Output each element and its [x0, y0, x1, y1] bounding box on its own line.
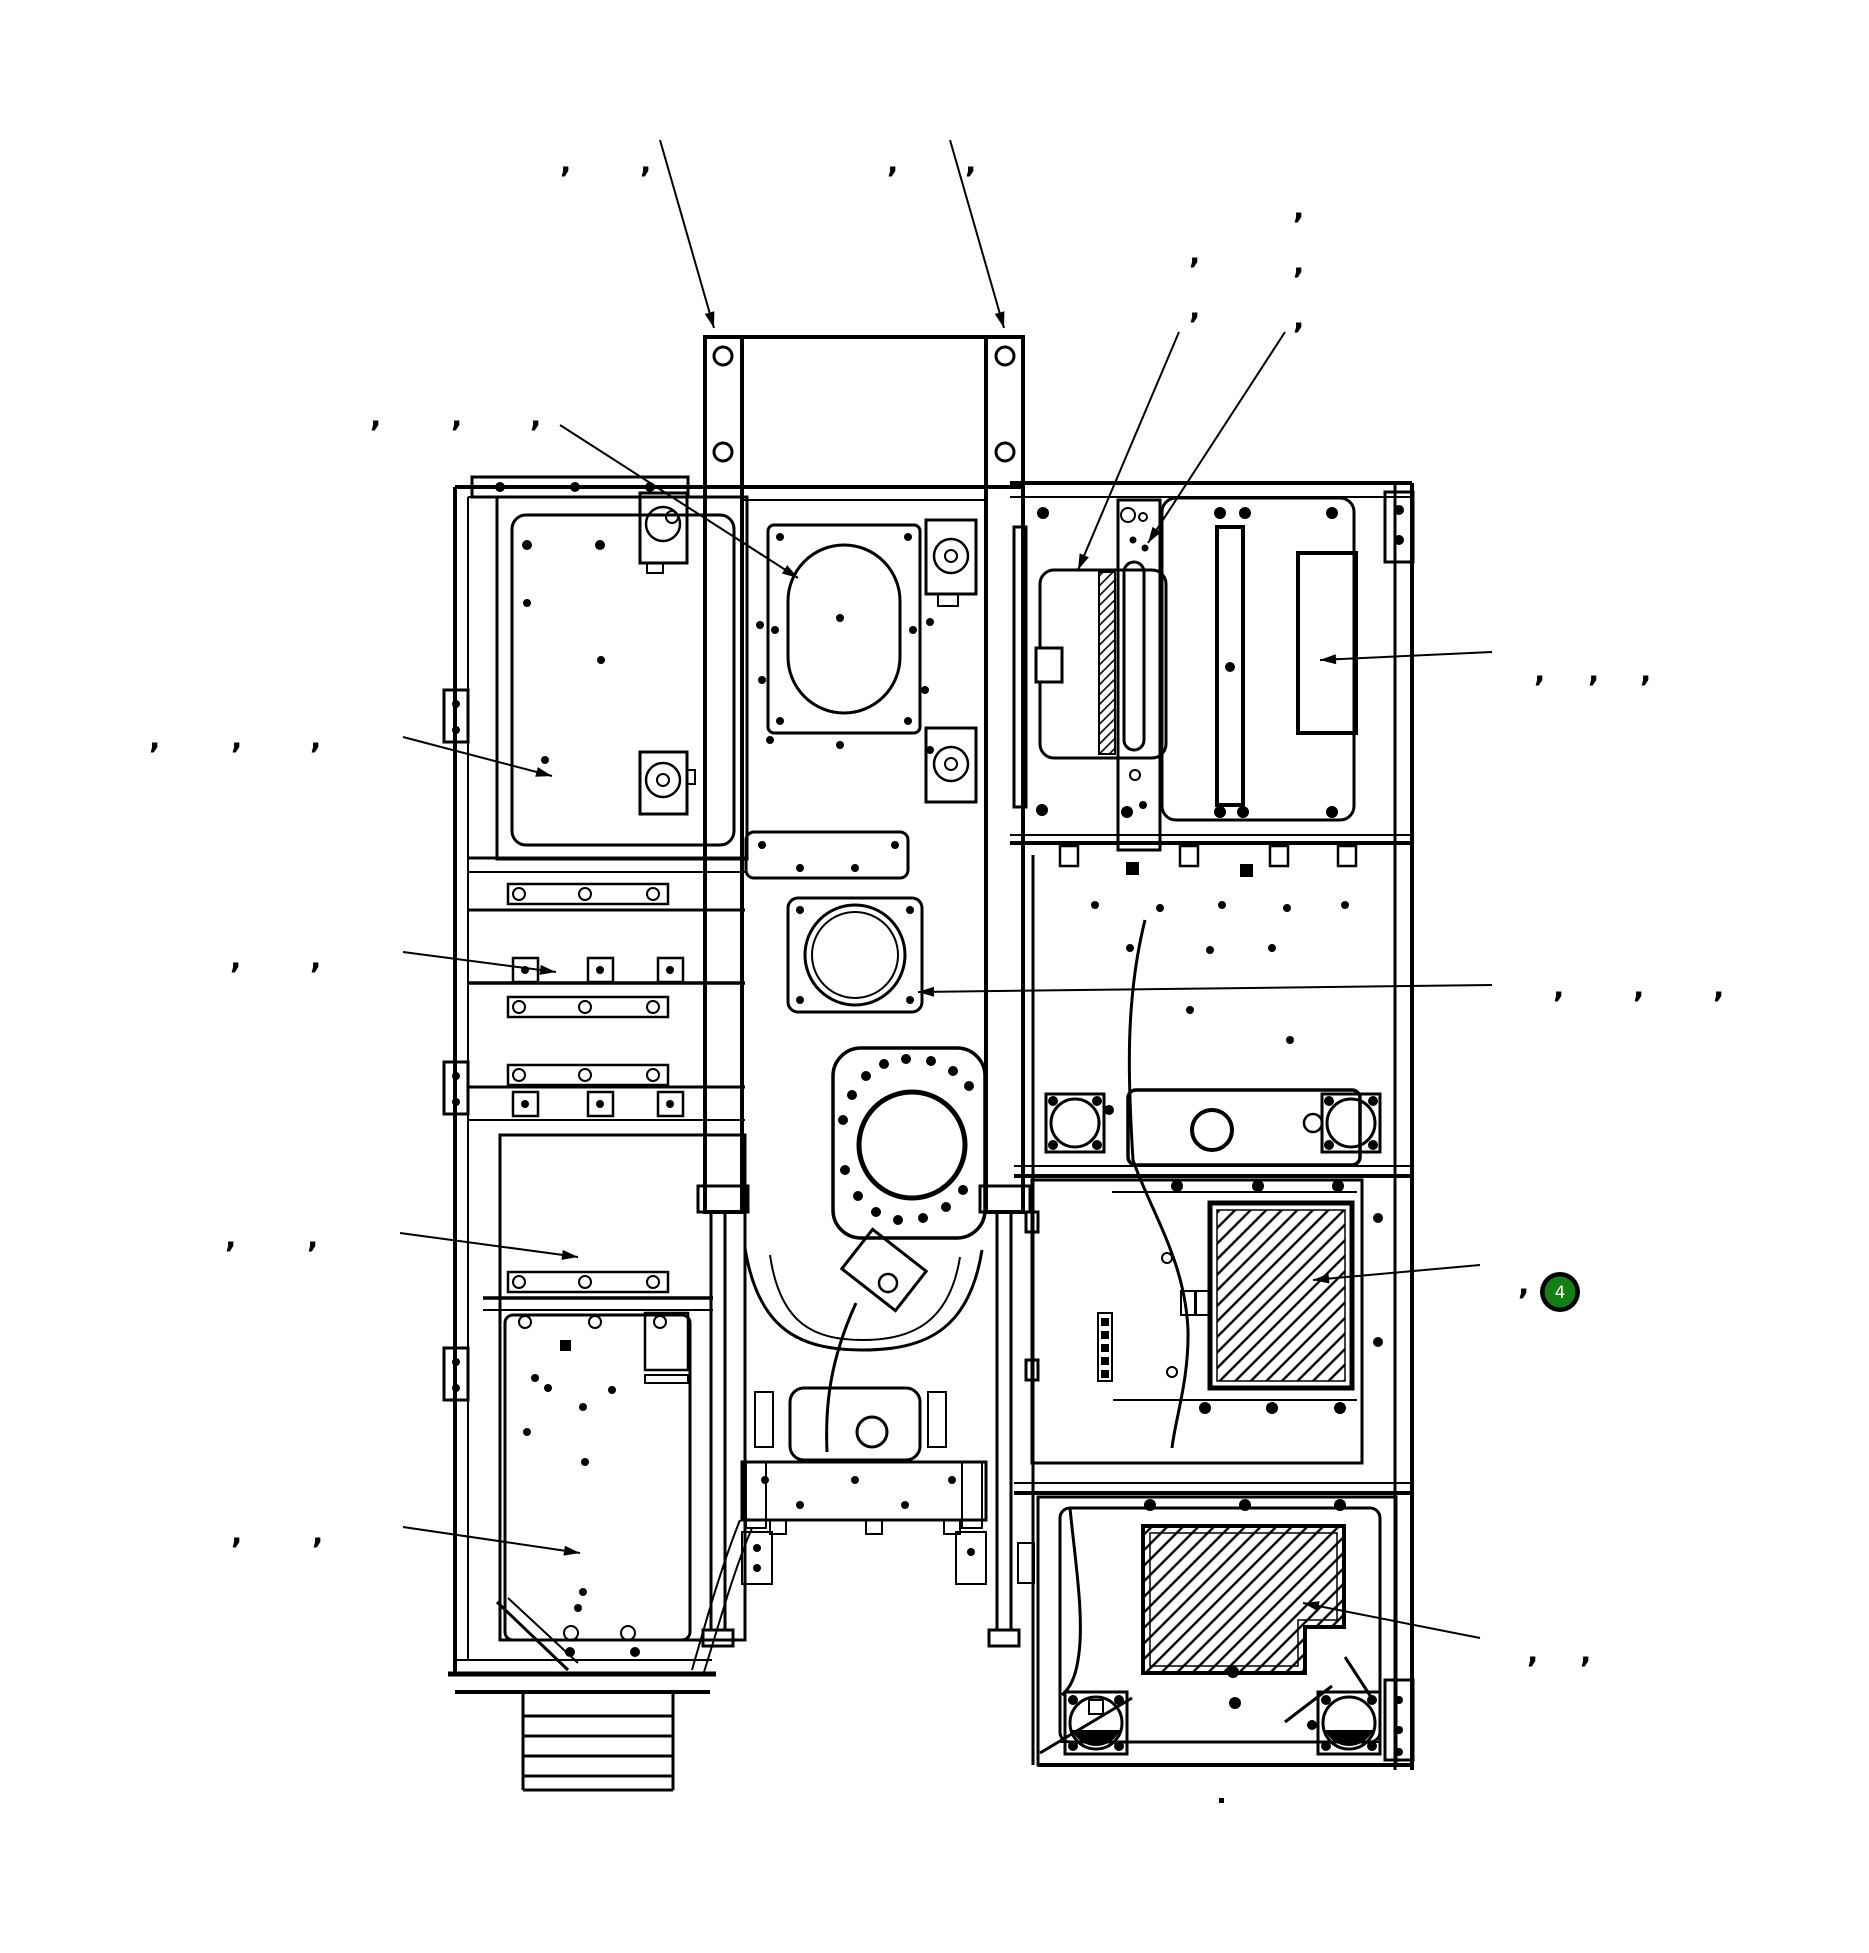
- part-label: ,: [560, 145, 571, 180]
- part-label: ,: [1527, 1635, 1538, 1670]
- part-label: ,: [1713, 970, 1724, 1005]
- part-label: ,: [640, 145, 651, 180]
- part-label: ,: [1293, 191, 1304, 226]
- leader-arrowhead: [705, 311, 715, 328]
- upper-left-panel: [497, 493, 747, 859]
- center-section: [692, 520, 986, 1672]
- lower-left-panel: [448, 1135, 745, 1790]
- right-panel-c: [1298, 553, 1356, 733]
- leader-arrowhead: [1078, 553, 1089, 570]
- part-label: ,: [1633, 970, 1644, 1005]
- badge-number: 4: [1555, 1283, 1566, 1303]
- main-flange: [833, 1048, 985, 1238]
- fan-bar: [1046, 1090, 1380, 1165]
- leader-arrowhead: [561, 1250, 578, 1260]
- part-label: ,: [1588, 654, 1599, 689]
- leader-line: [400, 1233, 578, 1257]
- part-label: ,: [451, 399, 462, 434]
- leader-line: [403, 952, 556, 972]
- hatched-strip: [1099, 572, 1115, 754]
- part-label: ,: [230, 941, 241, 976]
- part-label: ,: [312, 1516, 323, 1551]
- tilted-junction-box: [842, 1229, 926, 1310]
- upper-right-assembly: [1010, 498, 1412, 866]
- oval-access-plate: [768, 525, 920, 733]
- part-label: ,: [1293, 246, 1304, 281]
- leader-line: [560, 425, 798, 578]
- part-labels: ,,,,,,,,,,,,,,,,,,,,,,,,,,,,,,: [149, 145, 1724, 1670]
- leader-line: [403, 737, 552, 776]
- leader-arrowhead: [1320, 654, 1336, 664]
- main-right-panel: [1014, 1166, 1412, 1463]
- hatched-window-bottom: [1143, 1526, 1344, 1673]
- part-label: ,: [887, 145, 898, 180]
- stray-dot: [1219, 1798, 1224, 1803]
- callout-badge[interactable]: 4: [1540, 1272, 1580, 1312]
- vent-grille: [523, 1692, 673, 1790]
- fan-right: [1318, 1692, 1380, 1754]
- part-label: ,: [1553, 970, 1564, 1005]
- part-label: ,: [310, 941, 321, 976]
- part-label: ,: [310, 721, 321, 756]
- leader-line: [660, 140, 714, 328]
- part-label: ,: [1580, 1635, 1591, 1670]
- assembly-drawing: ,,,,,,,,,,,,,,,,,,,,,,,,,,,,,, 4: [0, 0, 1869, 1953]
- center-bottom-plates: [692, 1388, 986, 1672]
- part-label: ,: [965, 145, 976, 180]
- part-label: ,: [231, 1516, 242, 1551]
- right-section: [1010, 483, 1413, 1770]
- leader-line: [1320, 652, 1492, 660]
- leader-line: [1078, 332, 1179, 570]
- upper-flange: [788, 898, 922, 1012]
- tower-right-post: [986, 337, 1023, 1212]
- part-label: ,: [231, 721, 242, 756]
- leader-line: [403, 1527, 580, 1553]
- fan-left: [1065, 1692, 1127, 1754]
- part-label: ,: [307, 1220, 318, 1255]
- leader-arrowhead: [918, 987, 934, 997]
- part-label: ,: [530, 399, 541, 434]
- leader-line: [918, 985, 1492, 992]
- tower-left-post: [705, 337, 742, 1212]
- part-label: ,: [1640, 654, 1651, 689]
- part-label: ,: [370, 399, 381, 434]
- drawing-canvas: ,,,,,,,,,,,,,,,,,,,,,,,,,,,,,, 4: [0, 0, 1869, 1953]
- part-label: ,: [1189, 291, 1200, 326]
- leader-arrowhead: [995, 311, 1005, 328]
- part-label: ,: [1534, 654, 1545, 689]
- left-section: [444, 477, 747, 1790]
- part-label: ,: [1293, 301, 1304, 336]
- part-label: ,: [225, 1220, 236, 1255]
- part-label: ,: [1189, 236, 1200, 271]
- leader-arrowhead: [563, 1546, 580, 1556]
- part-label: ,: [1518, 1267, 1529, 1302]
- leader-arrowhead: [535, 767, 552, 777]
- part-label: ,: [149, 721, 160, 756]
- leader-arrowhead: [539, 965, 556, 975]
- bottom-right-panel: [1014, 1483, 1412, 1765]
- slot: [1124, 562, 1144, 750]
- leader-line: [950, 140, 1004, 328]
